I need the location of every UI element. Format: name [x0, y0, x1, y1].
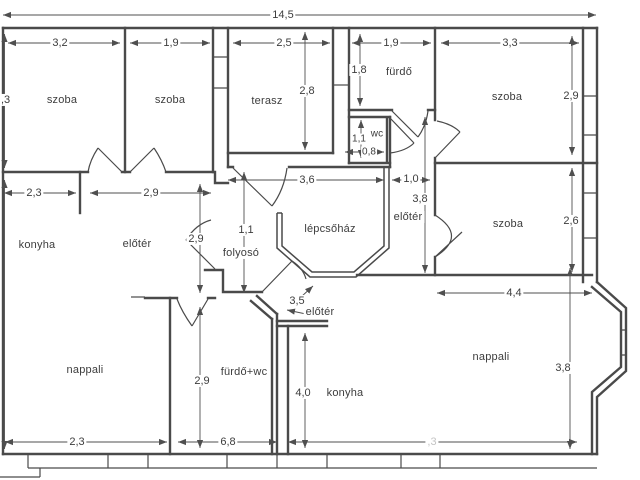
room-label-eloter-3: előtér — [304, 306, 337, 318]
floorplan-drawing — [0, 0, 640, 480]
room-label-konyha-2: konyha — [325, 387, 366, 399]
dim-left-upper-clipped: ,3 — [0, 94, 11, 106]
dim-terrace-width: 2,5 — [274, 37, 293, 49]
dim-bath-wc-width: 6,8 — [218, 436, 237, 448]
room-label-furdo: fürdő — [384, 66, 414, 78]
room-label-eloter-2: előtér — [392, 211, 425, 223]
room-label-lepcsohaz: lépcsőház — [302, 223, 357, 235]
dim-foyer-right-depth: 3,8 — [410, 193, 429, 205]
room-label-konyha-1: konyha — [17, 239, 58, 251]
dim-room-r-depth: 2,6 — [561, 215, 580, 227]
room-label-furdo-wc: fürdő+wc — [219, 366, 270, 378]
dim-corridor-r-width: 1,0 — [401, 173, 420, 185]
dim-room-tr-depth: 2,9 — [561, 90, 580, 102]
dim-wc-width: 0,8 — [361, 147, 377, 158]
floorplan-canvas: szoba szoba terasz fürdő wc szoba szoba … — [0, 0, 640, 480]
dim-wc-depth: 1,1 — [351, 134, 367, 145]
dim-staircase-width: 3,6 — [297, 174, 316, 186]
room-label-szoba-2: szoba — [153, 94, 187, 106]
dim-room2-width: 1,9 — [161, 37, 180, 49]
dim-room1-width: 3,2 — [50, 37, 69, 49]
dim-bathroom-depth: 1,8 — [349, 64, 368, 76]
dim-corridor-depth: 1,1 — [236, 224, 255, 236]
dim-entry-door-width: 3,5 — [287, 295, 306, 307]
dim-kitchen-r-depth: 4,0 — [293, 387, 312, 399]
dim-foyer-left-depth: 2,9 — [186, 233, 205, 245]
room-label-szoba-1: szoba — [45, 94, 79, 106]
dim-terrace-depth: 2,8 — [297, 85, 316, 97]
dim-bathroom-width: 1,9 — [381, 37, 400, 49]
dim-foyer-left-width: 2,9 — [141, 187, 160, 199]
dim-kitchen-left-width: 2,3 — [24, 187, 43, 199]
window-ticks — [0, 57, 626, 477]
room-label-folyoso: folyosó — [221, 247, 261, 259]
room-label-eloter-1: előtér — [121, 238, 154, 250]
dim-room-tr-width: 3,3 — [500, 37, 519, 49]
room-label-wc: wc — [370, 129, 385, 140]
room-label-nappali-1: nappali — [65, 364, 106, 376]
room-label-szoba-3: szoba — [490, 91, 524, 103]
dimension-lines — [3, 15, 596, 449]
dim-living-r-depth: 3,8 — [553, 362, 572, 374]
dim-living-r-width: ,3 — [425, 436, 438, 448]
room-label-nappali-2: nappali — [471, 351, 512, 363]
room-label-szoba-4: szoba — [491, 218, 525, 230]
room-label-terasz: terasz — [249, 95, 284, 107]
dim-living-l-width: 2,3 — [67, 436, 86, 448]
dim-overall-width: 14,5 — [270, 9, 295, 21]
dim-bath-wc-depth: 2,9 — [192, 375, 211, 387]
dim-room-r-width: 4,4 — [504, 287, 523, 299]
